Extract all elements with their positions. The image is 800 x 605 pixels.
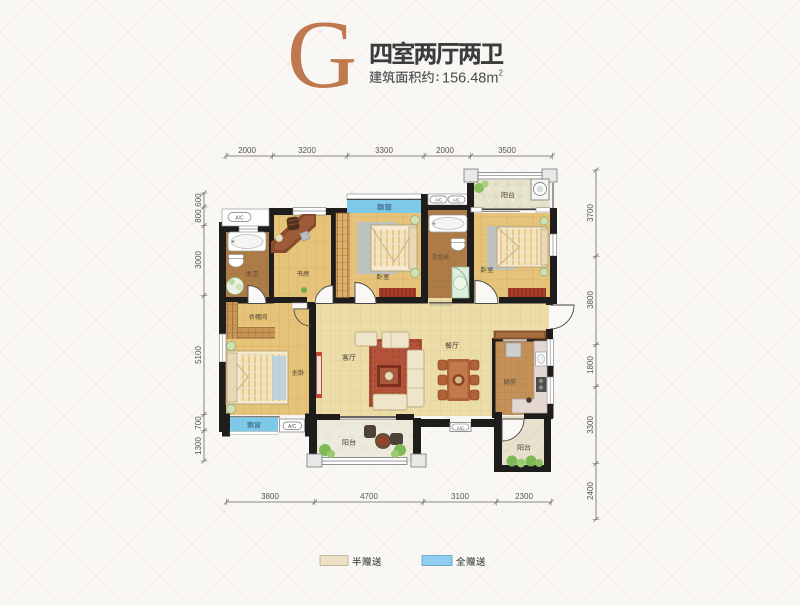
svg-text:800: 800 [194,209,203,223]
svg-text:3700: 3700 [586,204,595,222]
svg-text:A/C: A/C [435,198,443,203]
svg-text::: : [435,69,439,84]
svg-text:3300: 3300 [375,146,393,155]
svg-text:3000: 3000 [194,251,203,269]
svg-text:A/C: A/C [235,216,244,222]
svg-text:600: 600 [194,193,203,207]
svg-text:3200: 3200 [298,146,316,155]
svg-text:4700: 4700 [360,492,378,501]
svg-text:2: 2 [499,69,504,78]
svg-text:2400: 2400 [586,482,595,500]
svg-text:700: 700 [194,416,203,430]
svg-text:A/C: A/C [288,424,297,430]
svg-text:156.48m: 156.48m [442,71,498,87]
svg-text:3500: 3500 [498,146,516,155]
svg-text:1800: 1800 [586,356,595,374]
svg-text:2000: 2000 [436,146,454,155]
svg-text:3300: 3300 [586,416,595,434]
svg-text:A/C: A/C [453,198,461,203]
svg-text:3100: 3100 [451,492,469,501]
svg-text:2000: 2000 [238,146,256,155]
svg-text:5100: 5100 [194,346,203,364]
svg-text:3800: 3800 [586,291,595,309]
svg-text:A/C: A/C [457,426,465,431]
svg-text:3800: 3800 [261,492,279,501]
svg-text:1300: 1300 [194,437,203,455]
svg-text:2300: 2300 [515,492,533,501]
svg-text:G: G [287,1,357,108]
